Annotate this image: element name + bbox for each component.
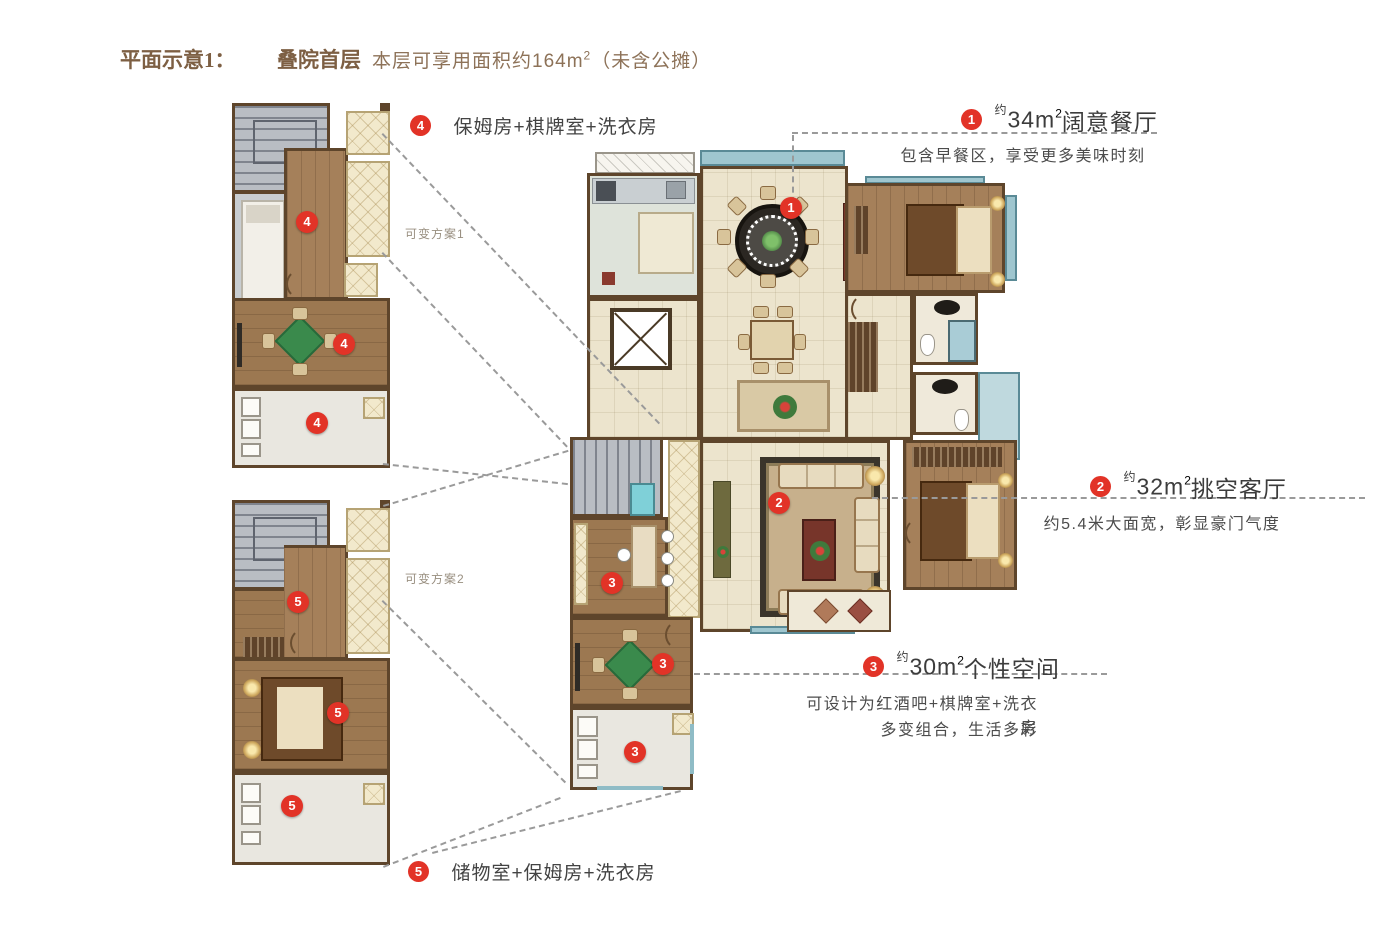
door-arc <box>905 518 935 548</box>
balcony <box>595 152 695 174</box>
coffee-machine <box>602 272 615 285</box>
marker-4: 4 <box>333 333 355 355</box>
cushion <box>813 598 838 623</box>
annotation-3-badge: 3 <box>863 656 884 677</box>
annotation-3-sup: 2 <box>957 654 964 668</box>
marker-4: 4 <box>306 412 328 434</box>
island-counter <box>638 212 694 274</box>
bedside-lamp <box>243 741 261 759</box>
bookshelf <box>848 322 878 392</box>
annotation-3-approx: 约 <box>896 650 908 664</box>
marker-2: 2 <box>768 492 790 514</box>
washer <box>241 397 261 417</box>
annotation-2-sup: 2 <box>1184 474 1191 488</box>
annotation-2-desc: 约5.4米大面宽，彰显豪门气度 <box>1032 510 1292 534</box>
stove <box>596 181 616 201</box>
closet <box>346 558 390 654</box>
annotation-1-sup: 2 <box>1055 107 1062 121</box>
marker-4: 4 <box>296 211 318 233</box>
marker-3: 3 <box>601 572 623 594</box>
closet <box>346 161 390 257</box>
door-arc <box>290 628 320 658</box>
stool <box>617 548 631 562</box>
elevator <box>610 308 672 370</box>
sink <box>241 443 261 457</box>
annotation-2-badge: 2 <box>1090 476 1111 497</box>
tv-cabinet <box>237 323 242 367</box>
page-title-name: 叠院首层 <box>277 44 361 74</box>
flex-room-bar <box>570 517 668 617</box>
chess-table <box>275 316 326 367</box>
leader-line <box>383 450 569 507</box>
annotation-3-name: 个性空间 <box>964 656 1060 682</box>
balcony-cushions <box>787 590 891 632</box>
shower <box>948 320 976 362</box>
bar-table <box>631 525 657 588</box>
area-text: 本层可享用面积约164m <box>372 51 584 72</box>
closet-column <box>668 440 700 618</box>
marker-1: 1 <box>780 197 802 219</box>
annotation-4: 4 保姆房+棋牌室+洗衣房 <box>410 112 658 139</box>
washer <box>241 419 261 439</box>
page-title-prefix: 平面示意1： <box>120 44 236 74</box>
annotation-4-badge: 4 <box>410 115 431 136</box>
marker-5: 5 <box>327 702 349 724</box>
annotation-1-name: 阔意餐厅 <box>1062 109 1158 135</box>
washer <box>577 739 598 760</box>
kitchen <box>587 173 700 298</box>
door-arc <box>851 294 881 324</box>
annotation-2: 2 约32m2挑空客厅 <box>1090 468 1287 504</box>
annotation-5-label: 储物室+保姆房+洗衣房 <box>451 863 655 884</box>
sofa <box>778 463 864 489</box>
annotation-4-label: 保姆房+棋牌室+洗衣房 <box>453 117 657 138</box>
bedside-lamp <box>990 272 1005 287</box>
washer <box>577 716 598 737</box>
corner-lamp <box>865 466 885 486</box>
floorplan-page: 平面示意1： 叠院首层 本层可享用面积约164m2（未含公摊） 4 保姆房+棋牌… <box>0 0 1400 933</box>
bedside-lamp <box>243 679 261 697</box>
page-title-area: 本层可享用面积约164m2（未含公摊） <box>372 46 711 73</box>
area-suffix: （未含公摊） <box>591 51 711 72</box>
window <box>690 724 694 774</box>
annotation-2-name: 挑空客厅 <box>1191 476 1287 502</box>
stairs-main <box>570 437 663 517</box>
annotation-1-area: 34m <box>1007 106 1055 132</box>
bathroom-2 <box>913 372 978 435</box>
tv-cabinet <box>575 643 580 691</box>
toilet <box>954 409 969 431</box>
variant-1-note: 可变方案1 <box>405 225 465 242</box>
sofa <box>854 497 880 573</box>
bathroom-1 <box>913 293 978 365</box>
bay-window <box>1005 195 1017 281</box>
chess-room <box>232 298 390 388</box>
bedroom-south <box>903 440 1017 590</box>
coffee-table <box>802 519 836 581</box>
bay-window <box>700 150 845 166</box>
washer <box>241 783 261 803</box>
water-feature <box>630 483 655 516</box>
bathroom-sink <box>934 300 960 315</box>
annotation-1: 1 约34m2阔意餐厅 <box>961 101 1158 137</box>
kitchen-sink <box>666 181 686 199</box>
bedside-lamp <box>998 473 1013 488</box>
marker-5: 5 <box>281 795 303 817</box>
variant-plan-2: 5 5 5 <box>232 500 390 865</box>
wardrobe <box>912 447 1002 467</box>
washer <box>241 805 261 825</box>
annotation-2-approx: 约 <box>1123 470 1135 484</box>
hall-rug <box>737 380 830 432</box>
bedroom-north <box>845 183 1005 293</box>
leader-line <box>792 135 794 203</box>
chess-table <box>605 640 656 691</box>
annotation-1-desc: 包含早餐区，享受更多美味时刻 <box>888 142 1158 166</box>
nanny-bedroom-2 <box>232 658 390 772</box>
window <box>597 786 663 790</box>
annotation-3-area: 30m <box>909 653 957 679</box>
leader-line <box>383 463 568 485</box>
stool <box>661 552 674 565</box>
bedside-lamp <box>990 196 1005 211</box>
marker-3: 3 <box>624 741 646 763</box>
annotation-2-area: 32m <box>1136 473 1184 499</box>
sink <box>577 764 598 779</box>
planter <box>713 481 731 578</box>
sink <box>241 831 261 845</box>
annotation-1-approx: 约 <box>994 103 1006 117</box>
bathroom-sink <box>932 379 958 394</box>
annotation-5-badge: 5 <box>408 861 429 882</box>
breakfast-table <box>750 320 794 360</box>
door-arc <box>665 620 695 650</box>
annotation-5: 5 储物室+保姆房+洗衣房 <box>408 858 656 885</box>
toilet <box>920 334 935 356</box>
door-arc <box>286 269 316 299</box>
marker-5: 5 <box>287 591 309 613</box>
annotation-3-desc2: 多变组合，生活多彩 <box>790 716 1038 740</box>
leader-line <box>382 252 568 447</box>
closet <box>344 263 378 297</box>
cushion <box>847 598 872 623</box>
closet <box>346 508 390 552</box>
laundry-room-2 <box>232 772 390 865</box>
variant-2-note: 可变方案2 <box>405 570 465 587</box>
annotation-1-badge: 1 <box>961 109 982 130</box>
variant-plan-1: 4 4 4 <box>232 103 390 468</box>
marker-3: 3 <box>652 653 674 675</box>
stool <box>661 574 674 587</box>
stool <box>661 530 674 543</box>
bedside-lamp <box>998 553 1013 568</box>
leader-line <box>382 600 566 783</box>
annotation-3: 3 约30m2个性空间 <box>863 648 1060 684</box>
